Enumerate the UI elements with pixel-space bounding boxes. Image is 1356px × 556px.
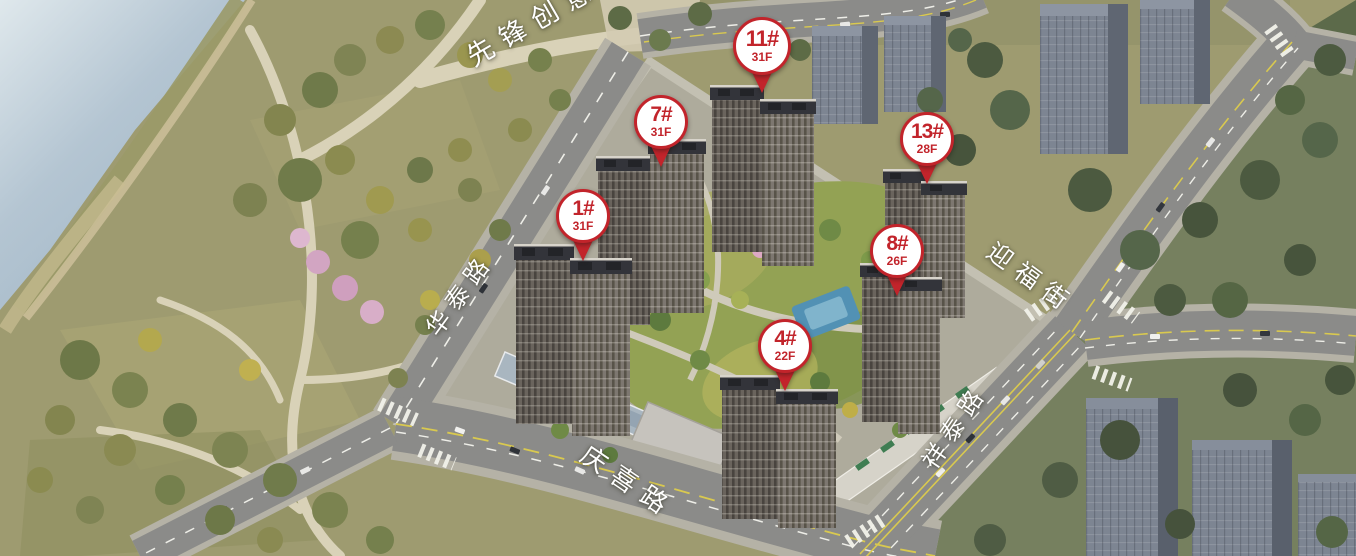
site-aerial-rendering xyxy=(0,0,1356,556)
building-pin-8[interactable]: 8# 26F xyxy=(870,224,924,296)
pin-building-number: 11# xyxy=(746,28,779,50)
building-pin-4[interactable]: 4# 22F xyxy=(758,319,812,391)
pin-head: 8# 26F xyxy=(870,224,924,278)
pin-head: 11# 31F xyxy=(733,17,791,75)
building-pin-13[interactable]: 13# 28F xyxy=(900,112,954,184)
pin-floor-count: 31F xyxy=(573,219,594,234)
pin-floor-count: 26F xyxy=(887,254,908,269)
pin-building-number: 8# xyxy=(886,233,907,254)
pin-floor-count: 31F xyxy=(752,50,773,65)
building-pin-7[interactable]: 7# 31F xyxy=(634,95,688,167)
building-pin-1[interactable]: 1# 31F xyxy=(556,189,610,261)
pin-building-number: 1# xyxy=(572,198,593,219)
pin-head: 1# 31F xyxy=(556,189,610,243)
pin-floor-count: 22F xyxy=(775,349,796,364)
pin-head: 13# 28F xyxy=(900,112,954,166)
pin-head: 4# 22F xyxy=(758,319,812,373)
pin-building-number: 7# xyxy=(650,104,671,125)
pin-floor-count: 28F xyxy=(917,142,938,157)
pin-building-number: 13# xyxy=(911,121,943,142)
building-pin-11[interactable]: 11# 31F xyxy=(733,17,791,93)
pin-building-number: 4# xyxy=(774,328,795,349)
site-plan-screenshot: 先锋创意 华泰路 迎福街 祥泰路 庆喜路 1# 31F 4# 22F 7# 31… xyxy=(0,0,1356,556)
pin-floor-count: 31F xyxy=(651,125,672,140)
pin-head: 7# 31F xyxy=(634,95,688,149)
